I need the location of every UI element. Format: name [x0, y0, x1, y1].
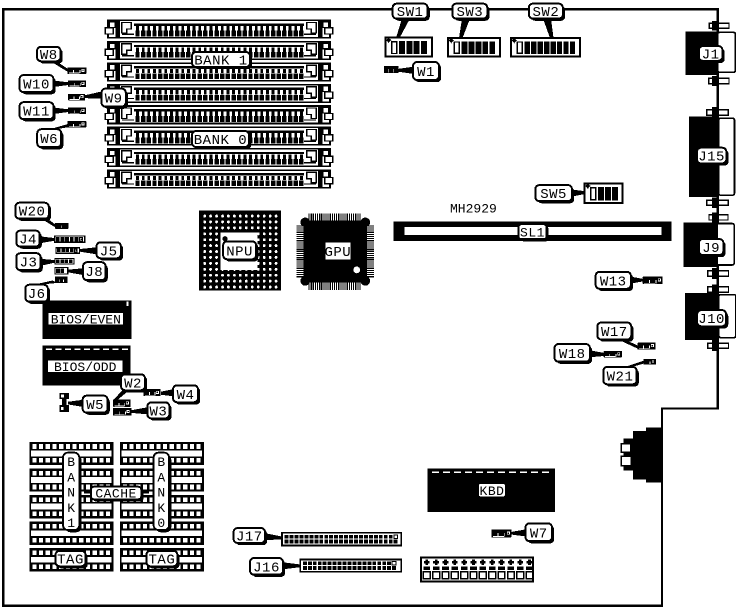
svg-text:TAG: TAG — [149, 553, 176, 569]
svg-text:BANK 1: BANK 1 — [194, 54, 247, 70]
svg-text:BIOS/ODD: BIOS/ODD — [54, 360, 117, 375]
svg-text:TAG: TAG — [57, 553, 84, 569]
svg-text:N: N — [67, 486, 75, 501]
svg-text:A: A — [67, 470, 75, 485]
svg-text:SL1: SL1 — [520, 225, 545, 240]
svg-text:W20: W20 — [19, 205, 46, 221]
svg-text:W13: W13 — [600, 274, 627, 290]
svg-text:K: K — [67, 501, 75, 516]
svg-text:J3: J3 — [20, 256, 38, 272]
svg-text:SW5: SW5 — [540, 187, 567, 203]
svg-text:MH2929: MH2929 — [450, 202, 497, 217]
svg-text:J16: J16 — [253, 560, 280, 576]
svg-text:J1: J1 — [702, 48, 720, 64]
svg-text:K: K — [157, 501, 165, 516]
svg-text:J8: J8 — [85, 265, 103, 281]
svg-text:W2: W2 — [124, 376, 142, 392]
svg-text:KBD: KBD — [480, 484, 505, 499]
svg-text:CACHE: CACHE — [95, 487, 137, 502]
svg-text:J15: J15 — [698, 150, 725, 166]
svg-text:W5: W5 — [86, 398, 104, 414]
svg-text:J9: J9 — [702, 241, 720, 257]
svg-text:J4: J4 — [19, 233, 37, 249]
svg-text:W6: W6 — [40, 132, 58, 148]
svg-text:W7: W7 — [530, 526, 548, 542]
svg-text:W11: W11 — [23, 105, 50, 121]
svg-text:W9: W9 — [105, 92, 123, 108]
svg-text:J17: J17 — [236, 530, 263, 546]
svg-text:NPU: NPU — [226, 244, 253, 260]
svg-text:J10: J10 — [698, 312, 725, 328]
svg-text:W18: W18 — [559, 347, 586, 363]
svg-text:W1: W1 — [417, 65, 435, 81]
svg-text:BANK 0: BANK 0 — [194, 133, 247, 149]
svg-text:W3: W3 — [149, 404, 167, 420]
svg-text:1: 1 — [67, 516, 75, 531]
svg-text:J5: J5 — [100, 244, 118, 260]
svg-text:SW1: SW1 — [397, 5, 424, 21]
svg-text:W10: W10 — [23, 78, 50, 94]
svg-text:N: N — [157, 486, 165, 501]
svg-text:0: 0 — [157, 516, 165, 531]
svg-text:W4: W4 — [177, 388, 195, 404]
svg-text:B: B — [67, 455, 75, 470]
svg-text:BIOS/EVEN: BIOS/EVEN — [51, 312, 121, 327]
svg-text:W17: W17 — [601, 325, 628, 341]
svg-text:GPU: GPU — [324, 245, 351, 261]
svg-text:B: B — [157, 455, 165, 470]
svg-text:W21: W21 — [607, 370, 634, 386]
svg-text:A: A — [157, 470, 165, 485]
